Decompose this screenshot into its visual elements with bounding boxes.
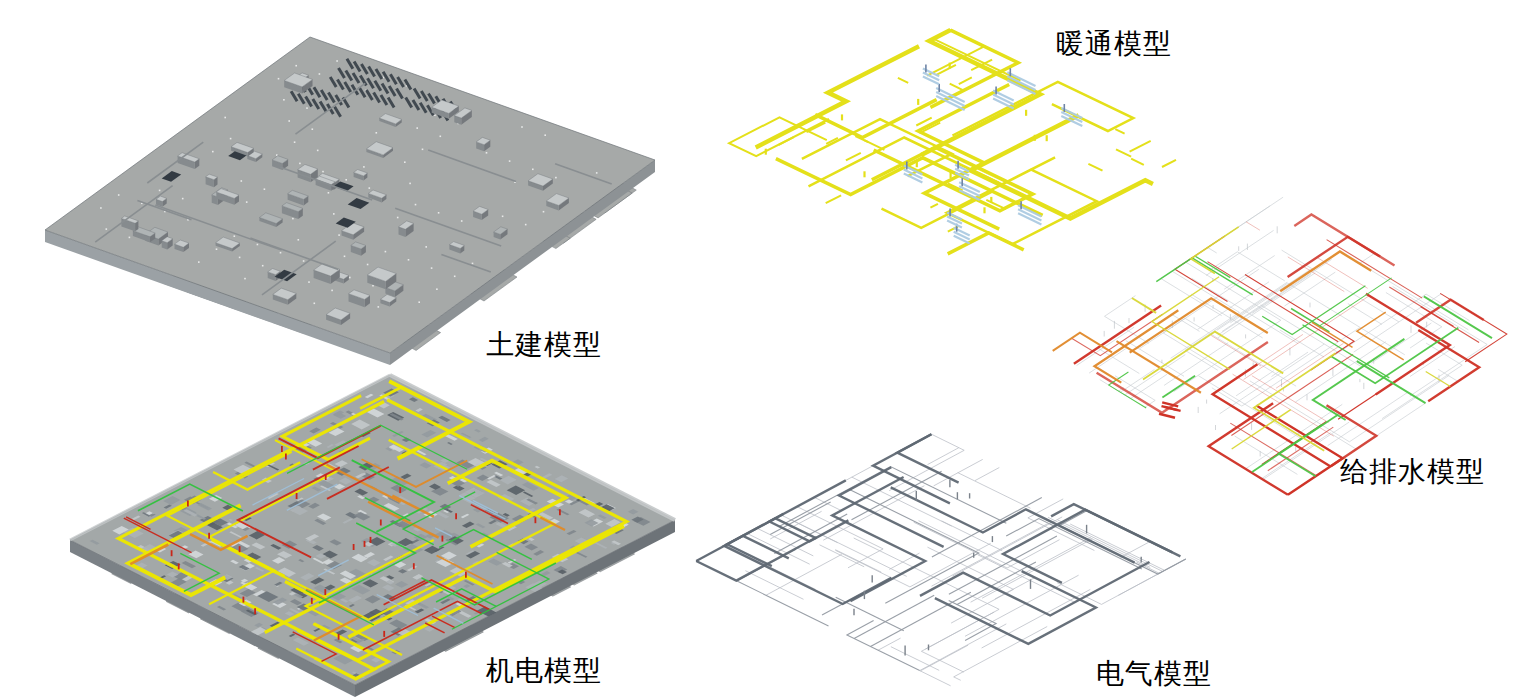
electrical-model-label: 电气模型 <box>1096 659 1212 690</box>
electrical-model-rendering <box>676 424 1211 696</box>
plumbing-model-rendering <box>1028 183 1533 508</box>
panel-electrical-model: 电气模型 <box>0 0 1533 699</box>
plumbing-model-label: 给排水模型 <box>1340 457 1485 488</box>
panel-plumbing-model: 给排水模型 <box>0 0 1533 699</box>
panel-civil-model: 土建模型 <box>0 0 1533 699</box>
mep-model-label: 机电模型 <box>486 656 602 687</box>
mep-model-rendering <box>40 365 700 699</box>
panel-mep-model: 机电模型 <box>0 0 1533 699</box>
hvac-model-label: 暖通模型 <box>1056 29 1172 60</box>
panel-hvac-model: 暖通模型 <box>0 0 1533 699</box>
civil-model-label: 土建模型 <box>486 330 602 361</box>
hvac-model-rendering <box>700 15 1230 310</box>
bim-model-collage: 土建模型 机电模型 暖通模型 给排水模型 电气模型 <box>0 0 1533 699</box>
civil-model-rendering <box>20 10 720 390</box>
